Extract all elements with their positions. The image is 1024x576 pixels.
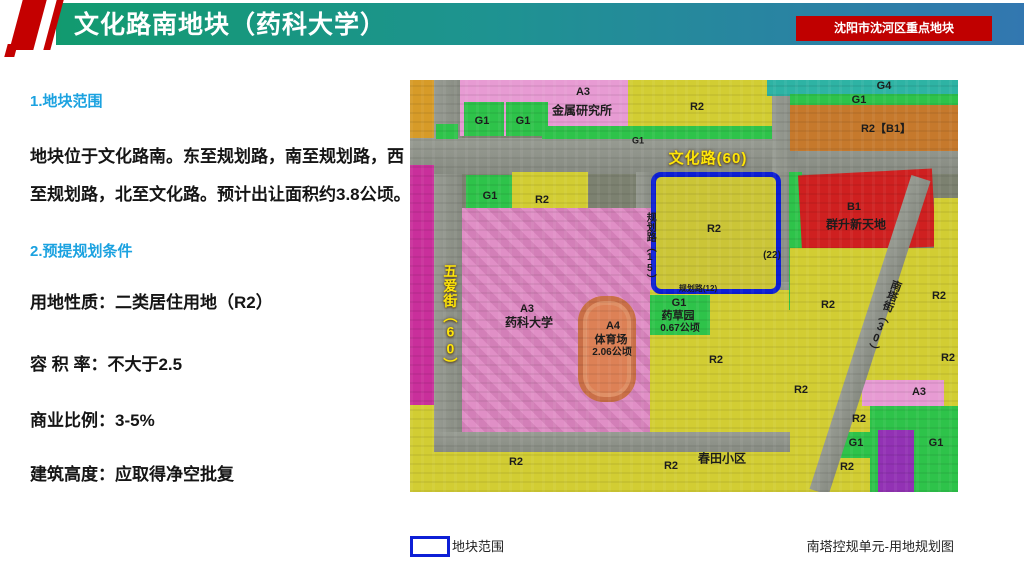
section1-body: 地块位于文化路南。东至规划路，南至规划路，西至规划路，北至文化路。预计出让面积约…	[30, 138, 412, 215]
map-label: 五爱街（60）	[443, 264, 458, 373]
header-slash-tail	[4, 44, 17, 57]
map-label: G4	[877, 81, 892, 93]
map-label: R2	[509, 457, 523, 469]
header-slash-decoration	[9, 0, 46, 50]
zoning-map: A3金属研究所G1G1R2G4G1R2【B1】G1文化路(60)G1R2规划路（…	[410, 80, 958, 492]
district-badge: 沈阳市沈河区重点地块	[796, 16, 992, 41]
map-label: 0.67公顷	[660, 324, 699, 335]
map-label: R2	[821, 300, 835, 312]
map-label: A3	[520, 304, 534, 316]
map-label: 药科大学	[505, 317, 553, 330]
map-label: B1	[847, 202, 861, 214]
map-label: 文化路(60)	[669, 151, 748, 167]
map-label: R2	[709, 355, 723, 367]
map-label: 群升新天地	[826, 219, 886, 232]
map-caption: 南塔控规单元-用地规划图	[807, 536, 954, 555]
map-label: 南塔街（30）	[864, 278, 902, 356]
header-bar: 文化路南地块（药科大学） 沈阳市沈河区重点地块	[0, 0, 1024, 60]
map-label: R2	[932, 291, 946, 303]
map-label: 金属研究所	[552, 105, 612, 118]
map-label: G1	[849, 438, 864, 450]
map-label: G1	[632, 136, 644, 145]
map-label: G1	[475, 116, 490, 128]
map-label: R2	[794, 385, 808, 397]
map-label: R2	[941, 353, 955, 365]
map-label: 规划路(12)	[679, 285, 717, 293]
map-label: G1	[929, 438, 944, 450]
slide: 文化路南地块（药科大学） 沈阳市沈河区重点地块 1.地块范围 地块位于文化路南。…	[0, 0, 1024, 576]
map-label: R2	[840, 462, 854, 474]
map-label: R2	[664, 461, 678, 473]
condition-commercial-ratio: 商业比例：3-5%	[30, 406, 155, 431]
text-panel: 1.地块范围 地块位于文化路南。东至规划路，南至规划路，西至规划路，北至文化路。…	[0, 60, 410, 576]
map-label: 春田小区	[698, 453, 746, 466]
legend-label: 地块范围	[452, 536, 504, 555]
plot-boundary-legend-icon	[410, 536, 450, 557]
map-label-layer: A3金属研究所G1G1R2G4G1R2【B1】G1文化路(60)G1R2规划路（…	[410, 80, 958, 492]
map-label: R2	[707, 224, 721, 236]
map-label: G1	[672, 298, 687, 310]
map-label: G1	[516, 116, 531, 128]
legend-row: 地块范围 南塔控规单元-用地规划图	[0, 530, 1024, 560]
map-label: A3	[912, 387, 926, 399]
section1-heading: 1.地块范围	[30, 90, 103, 111]
map-label: 规划路（15）	[644, 212, 655, 284]
map-label: R2【B1】	[861, 124, 911, 136]
map-label: A3	[576, 87, 590, 99]
map-label: R2	[535, 195, 549, 207]
condition-far: 容 积 率：不大于2.5	[30, 350, 182, 375]
condition-building-height: 建筑高度：应取得净空批复	[30, 460, 234, 485]
map-label: G1	[852, 95, 867, 107]
page-title: 文化路南地块（药科大学）	[74, 3, 386, 45]
map-label: 体育场	[595, 335, 628, 347]
map-label: (22)	[763, 251, 781, 262]
condition-land-use: 用地性质：二类居住用地（R2）	[30, 288, 273, 313]
map-label: A4	[606, 321, 620, 333]
map-label: 2.06公顷	[592, 348, 631, 359]
map-label: R2	[690, 102, 704, 114]
map-label: 药草园	[662, 311, 695, 323]
map-label: G1	[483, 191, 498, 203]
section2-heading: 2.预提规划条件	[30, 240, 133, 261]
map-label: R2	[852, 414, 866, 426]
